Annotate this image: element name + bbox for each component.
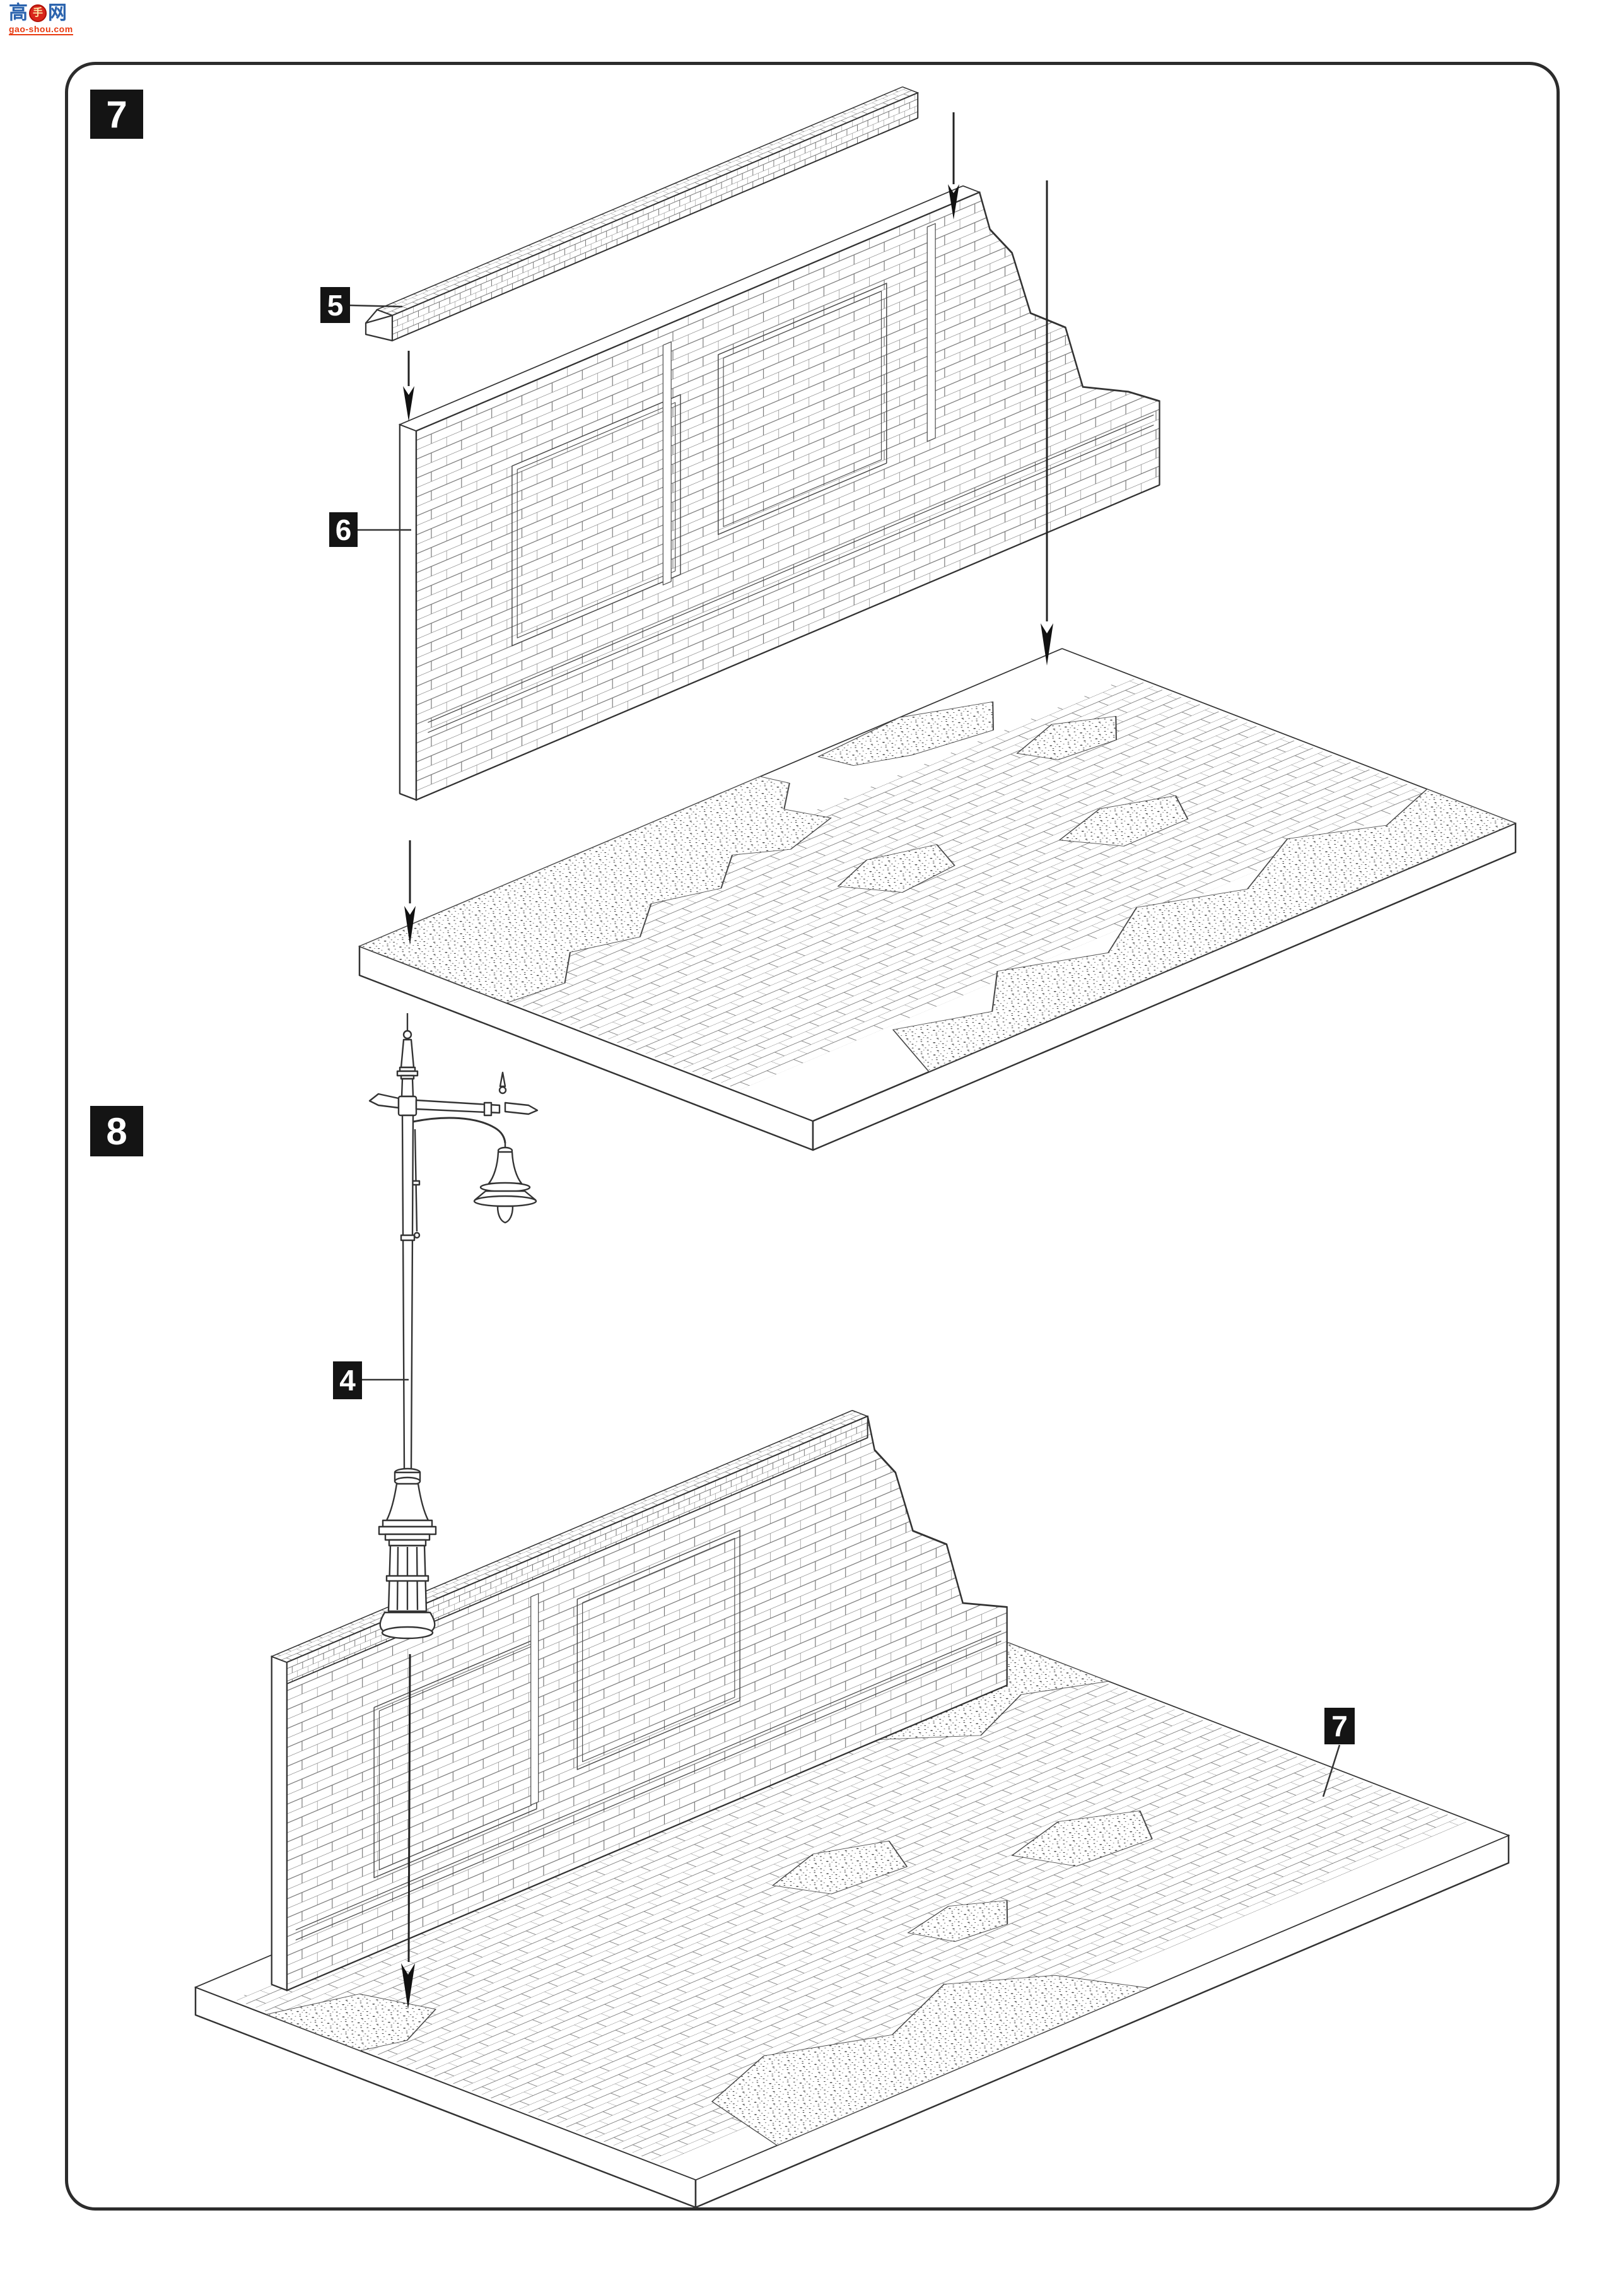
instruction-sheet-page: { "watermark": { "char_left": "高", "char… [0, 0, 1624, 2273]
step8-lamp-post-part4 [370, 1013, 537, 1638]
step8-diagram [196, 1013, 1509, 2207]
step7-diagram [350, 87, 1516, 1150]
diagram-canvas [0, 0, 1624, 2273]
